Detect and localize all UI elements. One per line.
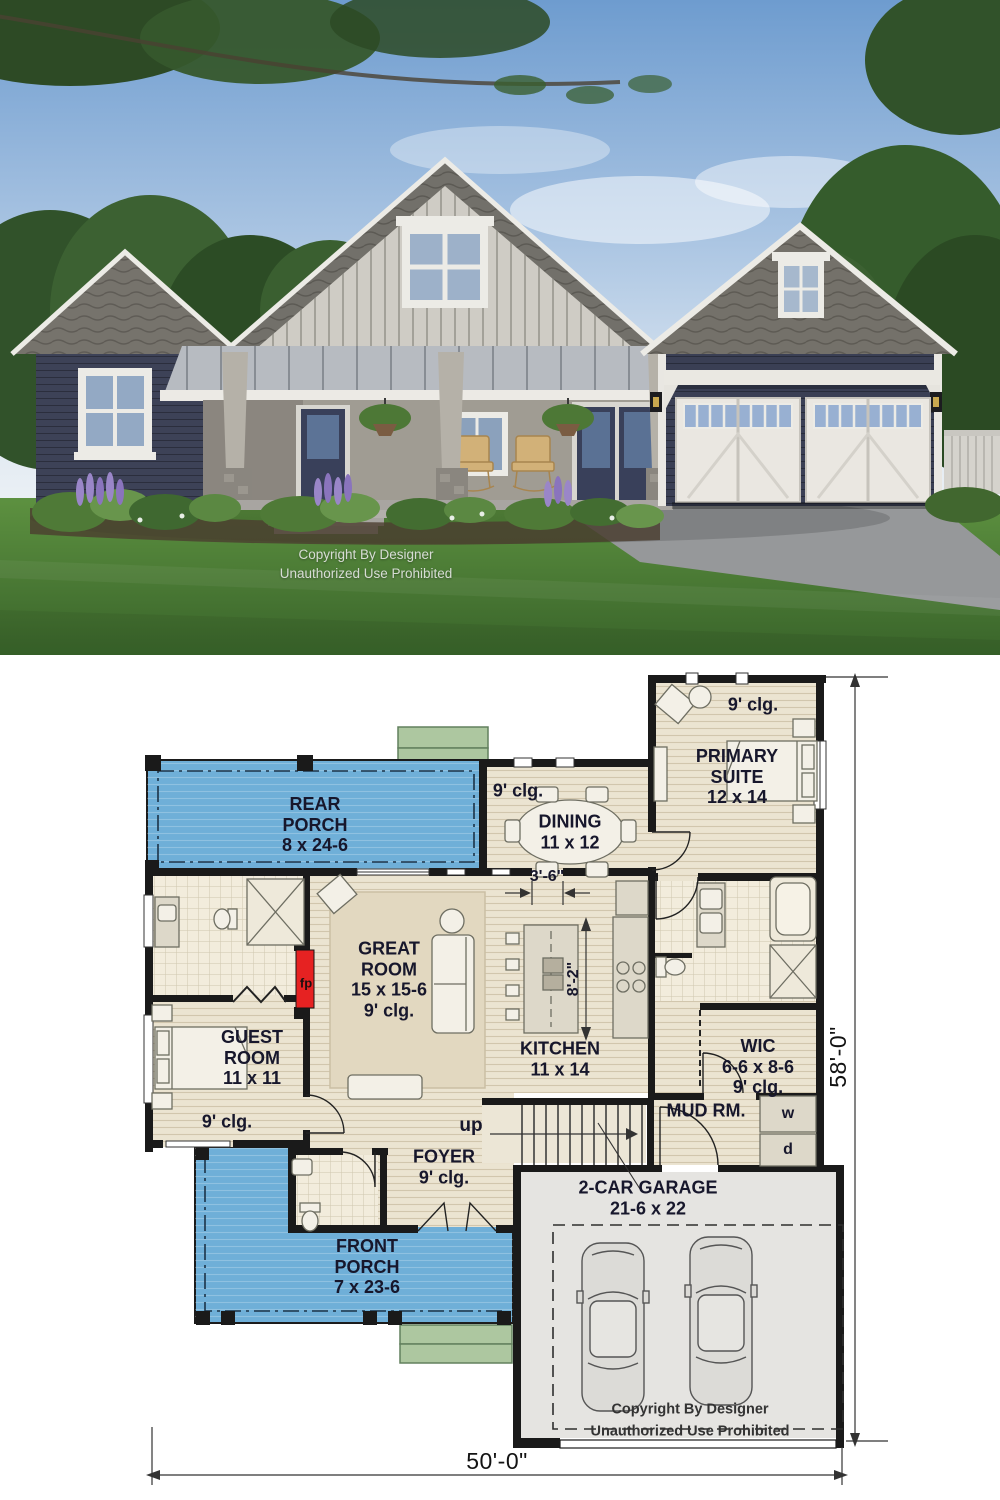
room-name: FOYER xyxy=(413,1146,475,1167)
fireplace-label: fp xyxy=(300,977,312,992)
side-table xyxy=(689,686,711,708)
lantern xyxy=(930,392,942,412)
room-label-guest-room: GUEST ROOM 11 x 11 xyxy=(221,1027,283,1089)
room-size: 11 x 12 xyxy=(539,832,602,853)
passage-width-dimension: 3'-6" xyxy=(530,868,565,886)
ceiling-label-guest: 9' clg. xyxy=(202,1112,252,1133)
overall-depth-dimension: 58'-0" xyxy=(825,1026,851,1088)
ottoman xyxy=(348,1075,422,1099)
porch-post xyxy=(196,1311,210,1325)
ceiling-height: 9' clg. xyxy=(493,781,543,802)
ceiling-height: 9' clg. xyxy=(728,695,778,716)
room-label-dining: DINING 11 x 12 xyxy=(539,811,602,852)
room-label-primary-suite: PRIMARY SUITE 12 x 14 xyxy=(696,746,778,808)
kitchen-clearance-dimension: 8'-2" xyxy=(565,962,583,997)
car xyxy=(685,1237,757,1405)
room-name: MUD RM. xyxy=(667,1101,746,1122)
sofa xyxy=(432,935,474,1033)
room-name: REAR PORCH xyxy=(282,794,348,835)
room-name: KITCHEN xyxy=(520,1038,600,1059)
room-size: 8 x 24-6 xyxy=(282,835,348,856)
left-window xyxy=(74,368,156,460)
room-label-rear-porch: REAR PORCH 8 x 24-6 xyxy=(282,794,348,856)
car xyxy=(577,1243,649,1411)
ceiling-height: 9' clg. xyxy=(351,1001,427,1022)
garage-gable-window xyxy=(772,252,830,318)
kitchen-counter xyxy=(613,881,648,1038)
room-name: FRONT PORCH xyxy=(334,1236,400,1277)
garage-header-beam xyxy=(664,370,940,385)
plan-watermark: Copyright By Designer Unauthorized Use P… xyxy=(591,1399,790,1443)
room-name: PRIMARY SUITE xyxy=(696,746,778,787)
exterior-rendering: Copyright By Designer Unauthorized Use P… xyxy=(0,0,1000,655)
ceiling-label-primary: 9' clg. xyxy=(728,695,778,716)
garage-door xyxy=(806,398,930,502)
room-name: 2-CAR GARAGE xyxy=(578,1177,717,1198)
porch-post xyxy=(388,1311,402,1325)
floor-plan: REAR PORCH 8 x 24-6 9' clg. DINING 11 x … xyxy=(0,655,1000,1500)
front-steps xyxy=(400,1325,512,1363)
ceiling-label-dining: 9' clg. xyxy=(493,781,543,802)
watermark-line2: Unauthorized Use Prohibited xyxy=(280,565,453,584)
ceiling-height: 9' clg. xyxy=(413,1167,475,1188)
attic-window xyxy=(396,216,494,308)
room-name: DINING xyxy=(539,811,602,832)
room-label-wic: WIC 6-6 x 8-6 9' clg. xyxy=(722,1036,794,1098)
front-porch-area xyxy=(203,398,663,504)
porch-post xyxy=(221,1311,235,1325)
porch-post xyxy=(497,1311,511,1325)
room-name: WIC xyxy=(722,1036,794,1057)
room-label-foyer: FOYER 9' clg. xyxy=(413,1146,475,1187)
photo-watermark: Copyright By Designer Unauthorized Use P… xyxy=(280,546,453,584)
room-label-great-room: GREAT ROOM 15 x 15-6 9' clg. xyxy=(351,939,427,1022)
room-name: GREAT ROOM xyxy=(351,939,427,980)
washer-label: w xyxy=(782,1105,794,1123)
watermark-line2: Unauthorized Use Prohibited xyxy=(591,1421,790,1443)
room-name: GUEST ROOM xyxy=(221,1027,283,1068)
porch-post xyxy=(297,755,313,771)
porch-post xyxy=(196,1147,209,1160)
dresser xyxy=(654,747,667,801)
room-size: 6-6 x 8-6 xyxy=(722,1057,794,1078)
room-label-front-porch: FRONT PORCH 7 x 23-6 xyxy=(334,1236,400,1298)
garage-door xyxy=(676,398,800,502)
lantern xyxy=(650,392,662,412)
shower xyxy=(247,879,304,945)
room-size: 12 x 14 xyxy=(696,787,778,808)
room-label-kitchen: KITCHEN 11 x 14 xyxy=(520,1038,600,1079)
room-size: 7 x 23-6 xyxy=(334,1277,400,1298)
room-size: 11 x 11 xyxy=(221,1068,283,1089)
shower xyxy=(770,945,816,998)
ceiling-height: 9' clg. xyxy=(202,1112,252,1133)
room-label-garage: 2-CAR GARAGE 21-6 x 22 xyxy=(578,1177,717,1218)
porch-post xyxy=(363,1311,377,1325)
porch-post xyxy=(145,860,159,874)
house-plan-listing-image: Copyright By Designer Unauthorized Use P… xyxy=(0,0,1000,1500)
room-size: 11 x 14 xyxy=(520,1059,600,1080)
exterior-illustration xyxy=(0,0,1000,655)
room-label-mud-room: MUD RM. xyxy=(667,1101,746,1122)
room-size: 21-6 x 22 xyxy=(578,1198,717,1219)
stairs-up-label: up xyxy=(459,1115,482,1137)
overall-width-dimension: 50'-0" xyxy=(466,1448,528,1474)
toilet xyxy=(214,909,237,929)
watermark-line1: Copyright By Designer xyxy=(591,1399,790,1421)
ceiling-height: 9' clg. xyxy=(722,1077,794,1098)
watermark-line1: Copyright By Designer xyxy=(280,546,453,565)
toilet xyxy=(656,957,685,977)
porch-post xyxy=(145,755,161,771)
round-table xyxy=(440,909,464,933)
room-size: 15 x 15-6 xyxy=(351,980,427,1001)
dryer-label: d xyxy=(783,1141,793,1159)
